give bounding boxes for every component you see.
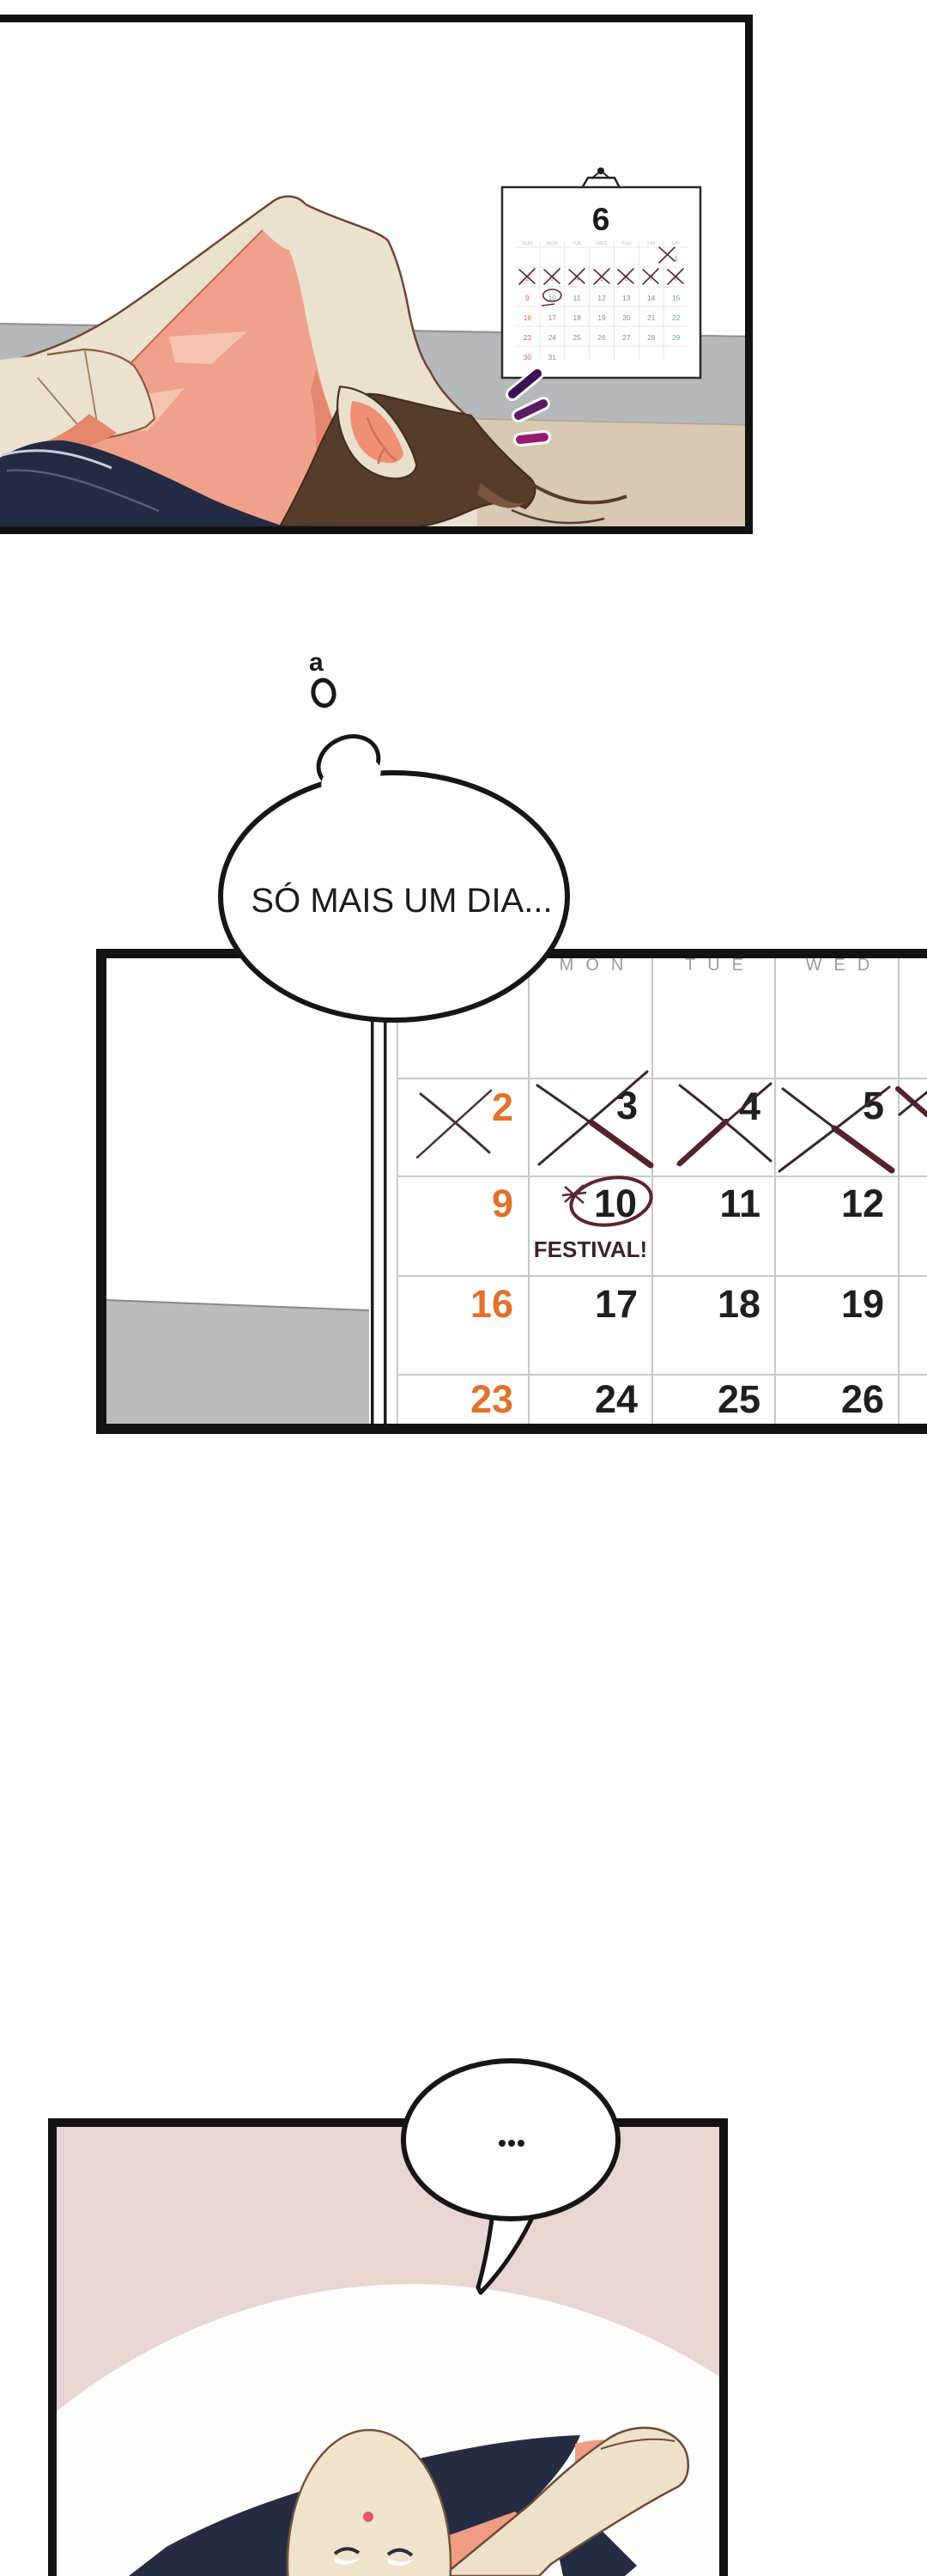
svg-text:30: 30: [524, 353, 532, 361]
svg-text:14: 14: [647, 294, 656, 302]
svg-text:27: 27: [622, 333, 631, 342]
svg-text:2: 2: [492, 1085, 513, 1129]
svg-text:11: 11: [573, 294, 581, 302]
svg-text:16: 16: [524, 313, 532, 322]
svg-text:9: 9: [525, 294, 530, 302]
svg-text:16: 16: [470, 1282, 513, 1326]
svg-text:WED: WED: [806, 956, 882, 975]
svg-text:12: 12: [841, 1182, 884, 1225]
svg-text:23: 23: [470, 1377, 513, 1421]
svg-text:17: 17: [595, 1282, 638, 1326]
svg-text:11: 11: [719, 1182, 760, 1225]
svg-text:SÓ MAIS UM DIA...: SÓ MAIS UM DIA...: [251, 881, 552, 920]
svg-text:21: 21: [647, 313, 656, 322]
svg-text:26: 26: [597, 333, 606, 342]
svg-text:FESTIVAL!: FESTIVAL!: [534, 1236, 647, 1262]
svg-text:WED: WED: [597, 241, 608, 246]
svg-text:31: 31: [548, 353, 557, 361]
svg-text:SUN: SUN: [523, 241, 533, 246]
svg-text:18: 18: [573, 313, 581, 322]
svg-text:26: 26: [841, 1377, 884, 1421]
svg-text:23: 23: [524, 333, 532, 342]
svg-text:17: 17: [548, 313, 557, 322]
svg-text:19: 19: [597, 313, 606, 322]
svg-text:20: 20: [622, 313, 631, 322]
svg-text:25: 25: [718, 1377, 760, 1421]
svg-text:18: 18: [718, 1282, 760, 1326]
svg-text:9: 9: [492, 1182, 513, 1225]
svg-text:24: 24: [595, 1377, 638, 1421]
svg-text:TUE: TUE: [573, 241, 582, 246]
svg-text:24: 24: [548, 333, 557, 342]
svg-text:MON: MON: [547, 241, 558, 246]
svg-text:TUE: TUE: [685, 956, 755, 975]
svg-text:12: 12: [597, 294, 606, 302]
svg-text:19: 19: [841, 1282, 884, 1326]
svg-text:15: 15: [672, 294, 681, 302]
svg-text:25: 25: [573, 333, 581, 342]
svg-text:28: 28: [647, 333, 656, 342]
svg-text:a: a: [309, 648, 324, 677]
svg-text:4: 4: [739, 1084, 760, 1128]
svg-text:MON: MON: [560, 956, 636, 975]
svg-text:SAT: SAT: [671, 241, 681, 246]
svg-text:FRI: FRI: [647, 241, 655, 246]
svg-text:13: 13: [622, 294, 631, 302]
svg-text:29: 29: [672, 333, 681, 342]
svg-text:6: 6: [592, 202, 610, 237]
svg-text:THU: THU: [621, 241, 631, 246]
svg-text:22: 22: [672, 313, 681, 322]
